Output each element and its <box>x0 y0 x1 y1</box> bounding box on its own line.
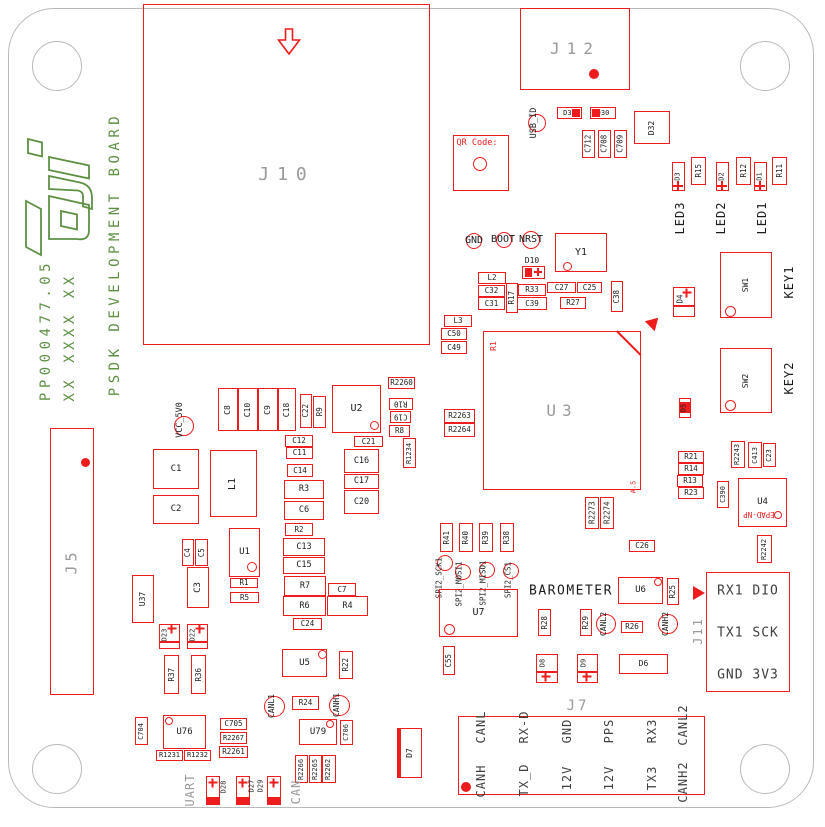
diode-d6: D6 <box>619 654 668 674</box>
connector-j12: J12 <box>520 8 630 90</box>
y1-pin1-ring <box>563 262 572 271</box>
resistor-r3-text: R3 <box>299 485 309 494</box>
diode-d6-text: D6 <box>639 660 649 668</box>
led-d1-text: D1 <box>757 172 764 180</box>
j11-pins-row3-text: GND 3V3 <box>717 669 779 682</box>
capacitor-c12: C12 <box>285 435 313 447</box>
resistor-r28-text: R28 <box>541 616 549 630</box>
resistor-r39: R39 <box>479 523 493 552</box>
j7-pin-tx3-text: TX3 <box>646 766 658 791</box>
capacitor-c21: C21 <box>354 436 383 447</box>
resistor-r7-text: R7 <box>300 582 310 591</box>
capacitor-c25: C25 <box>577 282 602 293</box>
j7-refdes-text: J7 <box>567 699 590 713</box>
resistor-r37-text: R37 <box>168 668 176 682</box>
qr-code-label-text: QR Code: <box>457 139 498 148</box>
capacitor-c27: C27 <box>547 282 576 293</box>
ic-u4-text: U4 <box>757 498 768 507</box>
connector-j12-text: J12 <box>550 41 600 57</box>
capacitor-c18-text: C18 <box>283 402 291 416</box>
d29-label-text: D29 <box>258 780 265 793</box>
resistor-r2260: R2260 <box>388 377 415 389</box>
resistor-r38: R38 <box>500 523 514 552</box>
mounting-hole-bottom-right <box>740 744 790 794</box>
j5-pin1-dot <box>81 458 90 467</box>
led-d2-text: D2 <box>719 172 726 180</box>
d10-fill <box>525 268 532 277</box>
mounting-hole-bottom-left <box>32 744 82 794</box>
j7-pin1-dot <box>461 782 471 792</box>
resistor-r10-text: R10 <box>394 400 408 408</box>
resistor-r2261: R2261 <box>219 746 248 758</box>
capacitor-c22-text: C22 <box>302 404 310 418</box>
capacitor-c22: C22 <box>300 394 312 428</box>
resistor-r4-text: R4 <box>342 602 352 611</box>
resistor-r2274: R2274 <box>600 497 614 529</box>
resistor-r12: R12 <box>736 157 751 185</box>
d23-polarity-mark <box>168 625 177 634</box>
resistor-r14-text: R14 <box>684 465 698 473</box>
d28-label-text: D28 <box>221 781 228 794</box>
d27-polarity-mark <box>239 779 248 788</box>
capacitor-c13: C13 <box>283 538 325 556</box>
inductor-l1: L1 <box>210 450 257 517</box>
diode-d32-text: D32 <box>648 120 656 134</box>
inductor-l2-text: L2 <box>487 274 496 282</box>
capacitor-c19: C19 <box>390 411 411 423</box>
capacitor-c712: C712 <box>582 130 595 158</box>
capacitor-c39: C39 <box>517 297 547 310</box>
u3-marking-r1-text: R1 <box>490 341 498 351</box>
diode-d7-text: D7 <box>405 748 413 758</box>
ic-u7-text: U7 <box>472 608 484 618</box>
testpoint-canh2-text: CANH2 <box>662 612 670 636</box>
capacitor-c4: C4 <box>182 539 194 566</box>
sw2-pin1-ring <box>725 400 736 411</box>
resistor-r2262-text: R2262 <box>326 758 333 779</box>
resistor-r23-text: R23 <box>684 489 698 497</box>
u3-marking-a5-text: A.5 <box>631 481 638 494</box>
d28-cathode-band <box>207 797 219 804</box>
testpoint-canl2-text: CANL2 <box>600 612 608 636</box>
ic-u6-text: U6 <box>635 586 646 595</box>
capacitor-c10: C10 <box>238 388 258 431</box>
text-led2-text: LED2 <box>715 202 727 235</box>
resistor-r7: R7 <box>284 576 326 596</box>
capacitor-c23-text: C23 <box>766 449 773 462</box>
testpoint-boot-text: BOOT <box>491 235 515 245</box>
resistor-r36-text: R36 <box>195 668 203 682</box>
pcb-assembly-drawing: PP000477.05XX XXXX XXPSDK DEVELOPMENT BO… <box>0 0 825 827</box>
inductor-l1-text: L1 <box>228 477 238 489</box>
resistor-r2265-text: R2265 <box>312 758 319 779</box>
capacitor-c413-text: C413 <box>752 447 759 464</box>
u4-epad-marking-text: EPAD-NP <box>743 510 775 518</box>
resistor-r2267-text: R2267 <box>223 735 244 742</box>
capacitor-c2-text: C2 <box>171 505 182 514</box>
resistor-r27: R27 <box>560 297 586 309</box>
resistor-r2263: R2263 <box>444 409 475 423</box>
capacitor-c5-text: C5 <box>198 548 206 557</box>
mounting-hole-top-right <box>740 41 790 91</box>
resistor-r17-text: R17 <box>508 291 516 305</box>
capacitor-c15: C15 <box>283 557 325 574</box>
capacitor-c709: C709 <box>614 130 627 158</box>
capacitor-c55-text: C55 <box>445 654 453 668</box>
ic-u5-text: U5 <box>299 659 310 668</box>
capacitor-c27-text: C27 <box>555 284 569 292</box>
text-led1-text: LED1 <box>756 202 768 235</box>
text-led3-text: LED3 <box>674 202 686 235</box>
j12-pin1-dot <box>589 69 599 79</box>
capacitor-c20: C20 <box>344 490 379 514</box>
resistor-r22-text: R22 <box>342 658 350 672</box>
resistor-r4: R4 <box>327 596 368 616</box>
j7-pin-pps-text: PPS <box>603 719 615 744</box>
resistor-r1234-text: R1234 <box>406 442 413 463</box>
resistor-r1234: R1234 <box>403 438 416 468</box>
resistor-r9: R9 <box>313 396 326 428</box>
resistor-r22: R22 <box>339 651 353 679</box>
resistor-r29: R29 <box>580 609 592 636</box>
resistor-r9-text: R9 <box>316 407 324 416</box>
sw1-pin1-ring <box>725 306 736 317</box>
testpoint-canh1-text: CANH1 <box>333 693 341 717</box>
resistor-r36: R36 <box>191 655 206 694</box>
capacitor-c15-text: C15 <box>296 561 311 570</box>
d29-cathode-band <box>268 797 280 804</box>
resistor-r2264-text: R2264 <box>448 426 471 434</box>
capacitor-c39-text: C39 <box>525 300 539 308</box>
resistor-r21: R21 <box>678 451 704 463</box>
capacitor-c712-text: C712 <box>585 135 593 153</box>
resistor-r15-text: R15 <box>695 164 703 178</box>
resistor-r11-text: R11 <box>776 164 784 178</box>
capacitor-c9: C9 <box>258 388 278 431</box>
d22-divider <box>187 641 208 643</box>
capacitor-c24: C24 <box>293 618 322 630</box>
resistor-r25: R25 <box>667 578 679 605</box>
resistor-r26: R26 <box>621 621 643 633</box>
inductor-l3-text: L3 <box>453 317 462 325</box>
resistor-r2263-text: R2263 <box>448 412 471 420</box>
text-d10-text: D10 <box>525 257 539 265</box>
capacitor-c6: C6 <box>284 501 324 520</box>
connector-j5-text: J5 <box>65 548 80 574</box>
capacitor-c26-text: C26 <box>635 542 649 550</box>
capacitor-c32-text: C32 <box>485 287 499 295</box>
testpoint-canl1-text: CANL1 <box>268 694 276 718</box>
d9-label-text: D9 <box>581 659 588 667</box>
text-barometer-text: BAROMETER <box>529 585 613 598</box>
resistor-r2274-text: R2274 <box>603 502 611 525</box>
j7-pin-rx-d-text: RX-D <box>518 711 530 744</box>
resistor-r2262: R2262 <box>322 755 336 783</box>
switch-sw1-text: SW1 <box>742 278 750 292</box>
resistor-r25-text: R25 <box>669 585 677 599</box>
j7-pin-12v-b-text: 12V <box>603 766 615 791</box>
ic-u3: U3 <box>483 331 641 490</box>
ic-u37-text: U37 <box>139 592 147 606</box>
resistor-r13-text: R13 <box>683 477 697 485</box>
resistor-r21-text: R21 <box>684 453 698 461</box>
ic-u37: U37 <box>132 575 154 623</box>
ic-u3-text: U3 <box>546 403 577 419</box>
resistor-r8-text: R8 <box>395 427 404 435</box>
capacitor-c11-text: C11 <box>293 449 307 457</box>
resistor-r2267: R2267 <box>220 732 247 744</box>
resistor-r2273: R2273 <box>585 497 599 529</box>
capacitor-c50-text: C50 <box>447 330 461 338</box>
resistor-r40-text: R40 <box>462 531 470 545</box>
resistor-r33: R33 <box>518 284 546 296</box>
crystal-y1-text: Y1 <box>575 248 587 258</box>
capacitor-c5: C5 <box>195 539 208 566</box>
capacitor-c413: C413 <box>748 442 762 468</box>
j11-pins-row2-text: TX1 SCK <box>717 627 779 640</box>
connector-j10-text: J10 <box>258 166 315 184</box>
silkscreen-part-number-text: PP000477.05 <box>39 259 53 401</box>
testpoint-vcc-5v0-text: VCC_5V0 <box>176 402 185 438</box>
resistor-r2242: R2242 <box>757 535 772 563</box>
connector-j7 <box>458 716 705 795</box>
capacitor-c390-text: C390 <box>720 486 727 503</box>
capacitor-c31-text: C31 <box>485 300 499 308</box>
capacitor-c17-text: C17 <box>354 477 369 486</box>
d22-polarity-mark <box>196 625 205 634</box>
resistor-r24: R24 <box>292 696 319 710</box>
resistor-r37: R37 <box>164 655 179 694</box>
resistor-r2-text: R2 <box>294 526 303 534</box>
resistor-r2260-text: R2260 <box>390 379 413 387</box>
text-can-text: CAN <box>290 780 302 805</box>
resistor-r1: R1 <box>230 578 258 588</box>
j11-pin1-arrow <box>693 586 705 600</box>
ic-u76-text: U76 <box>176 728 192 737</box>
capacitor-c10-text: C10 <box>244 402 252 416</box>
resistor-r15: R15 <box>691 157 706 185</box>
inductor-l2: L2 <box>478 272 506 284</box>
resistor-r12-text: R12 <box>740 164 748 178</box>
silkscreen-serial-text: XX XXXX XX <box>63 272 77 401</box>
resistor-r10: R10 <box>389 398 413 410</box>
resistor-r14: R14 <box>678 463 704 475</box>
capacitor-c2: C2 <box>153 495 199 524</box>
silkscreen-board-name-text: PSDK DEVELOPMENT BOARD <box>108 112 122 396</box>
resistor-r41: R41 <box>440 523 453 552</box>
switch-sw2-text: SW2 <box>742 373 750 387</box>
dji-logo-glyph <box>22 127 100 257</box>
resistor-r2265: R2265 <box>309 755 322 783</box>
capacitor-c19-text: C19 <box>394 413 408 421</box>
capacitor-c9-text: C9 <box>264 405 272 415</box>
capacitor-c17: C17 <box>344 474 379 489</box>
resistor-r40: R40 <box>459 523 473 552</box>
ic-u2-text: U2 <box>350 404 362 414</box>
diode-d32: D32 <box>634 111 670 144</box>
resistor-r24-text: R24 <box>299 699 313 707</box>
u6-pin1-ring <box>654 578 662 586</box>
d4-polarity-mark <box>683 289 692 298</box>
capacitor-c25-text: C25 <box>583 284 597 292</box>
u79-pin1-ring <box>326 720 334 728</box>
resistor-r1232-text: R1232 <box>187 752 208 759</box>
capacitor-c708-text: C708 <box>601 135 609 153</box>
resistor-r29-text: R29 <box>582 616 590 630</box>
j7-pin-canh-text: CANH <box>475 765 487 798</box>
j7-pin-canl-text: CANL <box>475 711 487 744</box>
resistor-r5-text: R5 <box>240 594 249 602</box>
j11-refdes-text: J11 <box>692 617 704 645</box>
capacitor-c708: C708 <box>598 130 611 158</box>
led-d3-text: D3 <box>675 172 682 180</box>
capacitor-c1: C1 <box>153 449 199 489</box>
d9-polarity-mark <box>583 673 592 682</box>
inductor-l3: L3 <box>444 315 472 327</box>
d7-cathode-band <box>397 728 401 778</box>
u7-pin1-ring <box>444 624 455 635</box>
capacitor-c704-text: C704 <box>138 723 145 740</box>
capacitor-c709-text: C709 <box>617 135 625 153</box>
capacitor-c4-text: C4 <box>184 548 192 557</box>
d27-label-text: D27 <box>249 780 256 793</box>
resistor-r8: R8 <box>389 425 410 437</box>
resistor-r2266-text: R2266 <box>298 758 305 779</box>
d23-divider <box>159 641 180 643</box>
u4-pin1-ring <box>774 511 782 519</box>
text-key2-text: KEY2 <box>783 362 795 395</box>
testpoint-usb-id-text: USB_ID <box>530 108 539 139</box>
capacitor-c390: C390 <box>717 481 729 508</box>
testpoint-nrst-text: NRST <box>519 235 543 245</box>
resistor-r3: R3 <box>284 480 324 499</box>
capacitor-c31: C31 <box>478 297 505 310</box>
capacitor-c16-text: C16 <box>354 457 369 466</box>
d1-polarity-mark <box>755 181 765 191</box>
d2-polarity-mark <box>717 181 727 191</box>
j7-pin-tx-d-text: TX_D <box>518 764 530 797</box>
resistor-r2: R2 <box>285 523 313 536</box>
j7-pin-gnd-text: GND <box>561 719 573 744</box>
text-uart-text: UART <box>184 774 196 807</box>
capacitor-c24-text: C24 <box>301 620 315 628</box>
capacitor-c26: C26 <box>629 540 655 552</box>
resistor-r1231-text: R1231 <box>159 752 180 759</box>
resistor-r2261-text: R2261 <box>222 748 245 756</box>
d28-polarity-mark <box>209 779 218 788</box>
capacitor-c55: C55 <box>443 646 455 675</box>
j7-pin-rx3-text: RX3 <box>646 719 658 744</box>
capacitor-c12-text: C12 <box>292 437 306 445</box>
capacitor-c1-text: C1 <box>171 465 182 474</box>
u76-pin1-ring <box>165 717 173 725</box>
resistor-r2273-text: R2273 <box>588 502 596 525</box>
j7-pin-12v-a-text: 12V <box>561 766 573 791</box>
resistor-r5: R5 <box>230 592 259 603</box>
resistor-r38-text: R38 <box>503 531 511 545</box>
connector-j5: J5 <box>50 428 94 695</box>
capacitor-c21-text: C21 <box>362 438 376 446</box>
capacitor-c20-text: C20 <box>354 498 369 507</box>
d29-polarity-mark <box>270 779 279 788</box>
capacitor-c8-text: C8 <box>224 405 232 415</box>
resistor-r1231: R1231 <box>156 750 183 761</box>
j11-pins-row1-text: RX1 DIO <box>717 585 779 598</box>
capacitor-c706-text: C706 <box>343 724 350 741</box>
capacitor-c705-text: C705 <box>224 720 242 728</box>
capacitor-c38: C38 <box>611 281 623 312</box>
resistor-r2243: R2243 <box>731 441 745 468</box>
capacitor-c13-text: C13 <box>296 543 311 552</box>
capacitor-c3: C3 <box>187 567 209 608</box>
capacitor-c6-text: C6 <box>299 506 309 515</box>
d27-cathode-band <box>237 797 249 804</box>
resistor-r41-text: R41 <box>443 531 451 545</box>
capacitor-c18: C18 <box>278 388 296 431</box>
capacitor-c706: C706 <box>340 720 353 745</box>
resistor-r26-text: R26 <box>625 623 639 631</box>
mounting-hole-top-left <box>32 41 82 91</box>
u1-pin1-ring <box>247 562 257 572</box>
resistor-r6: R6 <box>283 596 326 616</box>
orientation-arrow-icon-glyph <box>277 28 302 60</box>
ic-u4: U4 <box>738 478 787 527</box>
capacitor-c50: C50 <box>441 328 467 340</box>
j7-pin-canl2-text: CANL2 <box>677 704 689 745</box>
capacitor-c3-text: C3 <box>194 582 203 593</box>
resistor-r33-text: R33 <box>525 286 539 294</box>
capacitor-c704: C704 <box>135 717 148 745</box>
d8-polarity-mark <box>542 673 551 682</box>
j7-pin-canh2-text: CANH2 <box>677 761 689 802</box>
resistor-r28: R28 <box>538 609 551 636</box>
capacitor-c7: C7 <box>328 583 356 596</box>
d4-divider <box>673 305 695 307</box>
d10-polarity-mark <box>534 268 542 276</box>
text-key1-text: KEY1 <box>783 266 795 299</box>
u5-pin1-ring <box>318 650 327 659</box>
capacitor-c32: C32 <box>478 285 505 297</box>
resistor-r27-text: R27 <box>566 299 580 307</box>
capacitor-c16: C16 <box>344 449 379 473</box>
resistor-r11: R11 <box>772 157 787 185</box>
capacitor-c705: C705 <box>220 718 247 730</box>
resistor-r6-text: R6 <box>299 602 309 611</box>
qr-code-circle <box>473 157 487 171</box>
d5-label-text: D5 <box>681 404 688 412</box>
capacitor-c14-text: C14 <box>293 467 307 475</box>
capacitor-c49: C49 <box>441 341 467 354</box>
d30-cathode-mark <box>592 109 600 117</box>
capacitor-c8: C8 <box>218 388 238 431</box>
u2-pin1-ring <box>370 421 379 430</box>
d31-cathode-mark <box>572 109 580 117</box>
resistor-r1232: R1232 <box>184 750 211 761</box>
capacitor-c14: C14 <box>287 464 313 477</box>
d3-polarity-mark <box>673 181 683 191</box>
capacitor-c38-text: C38 <box>613 290 621 304</box>
resistor-r13: R13 <box>677 475 703 487</box>
testpoint-gnd-text: GND <box>465 236 483 246</box>
capacitor-c49-text: C49 <box>447 344 461 352</box>
resistor-r1-text: R1 <box>239 579 248 587</box>
capacitor-c11: C11 <box>286 447 313 459</box>
resistor-r2242-text: R2242 <box>761 538 768 559</box>
resistor-r23: R23 <box>678 487 704 499</box>
resistor-r2264: R2264 <box>444 423 475 437</box>
capacitor-c7-text: C7 <box>337 586 346 594</box>
resistor-r2243-text: R2243 <box>735 444 742 465</box>
